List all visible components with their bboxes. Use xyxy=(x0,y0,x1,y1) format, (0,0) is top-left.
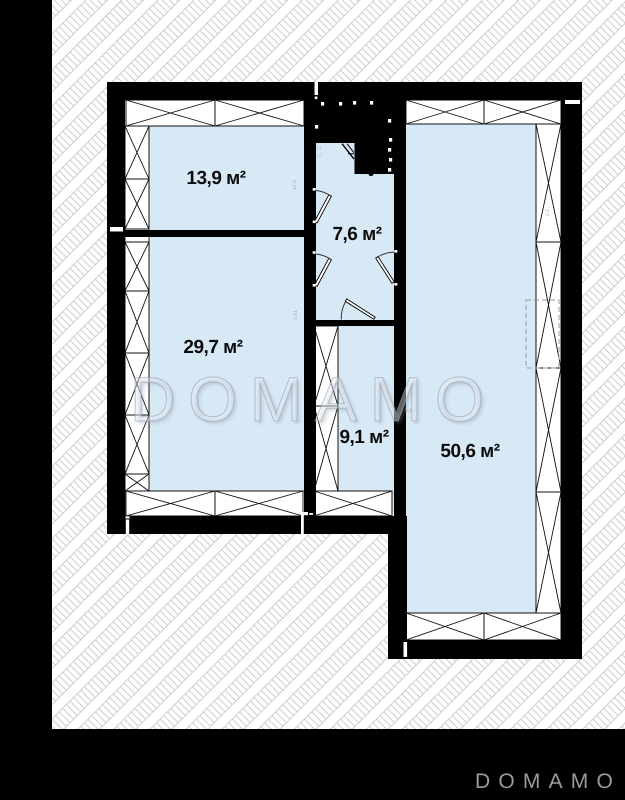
svg-text:13,9 м²: 13,9 м² xyxy=(186,168,245,189)
svg-text:7,6 м²: 7,6 м² xyxy=(332,224,381,245)
svg-text:29,7 м²: 29,7 м² xyxy=(183,337,242,358)
svg-text:DOMAMO: DOMAMO xyxy=(130,365,497,435)
svg-text:50,6 м²: 50,6 м² xyxy=(440,441,499,462)
svg-text:11: 11 xyxy=(316,145,322,151)
svg-text:12: 12 xyxy=(316,153,322,159)
svg-text:1.41: 1.41 xyxy=(293,310,299,320)
svg-text:DOMAMO: DOMAMO xyxy=(475,770,621,793)
svg-text:2.3: 2.3 xyxy=(545,209,551,216)
svg-text:12.3: 12.3 xyxy=(292,180,298,190)
